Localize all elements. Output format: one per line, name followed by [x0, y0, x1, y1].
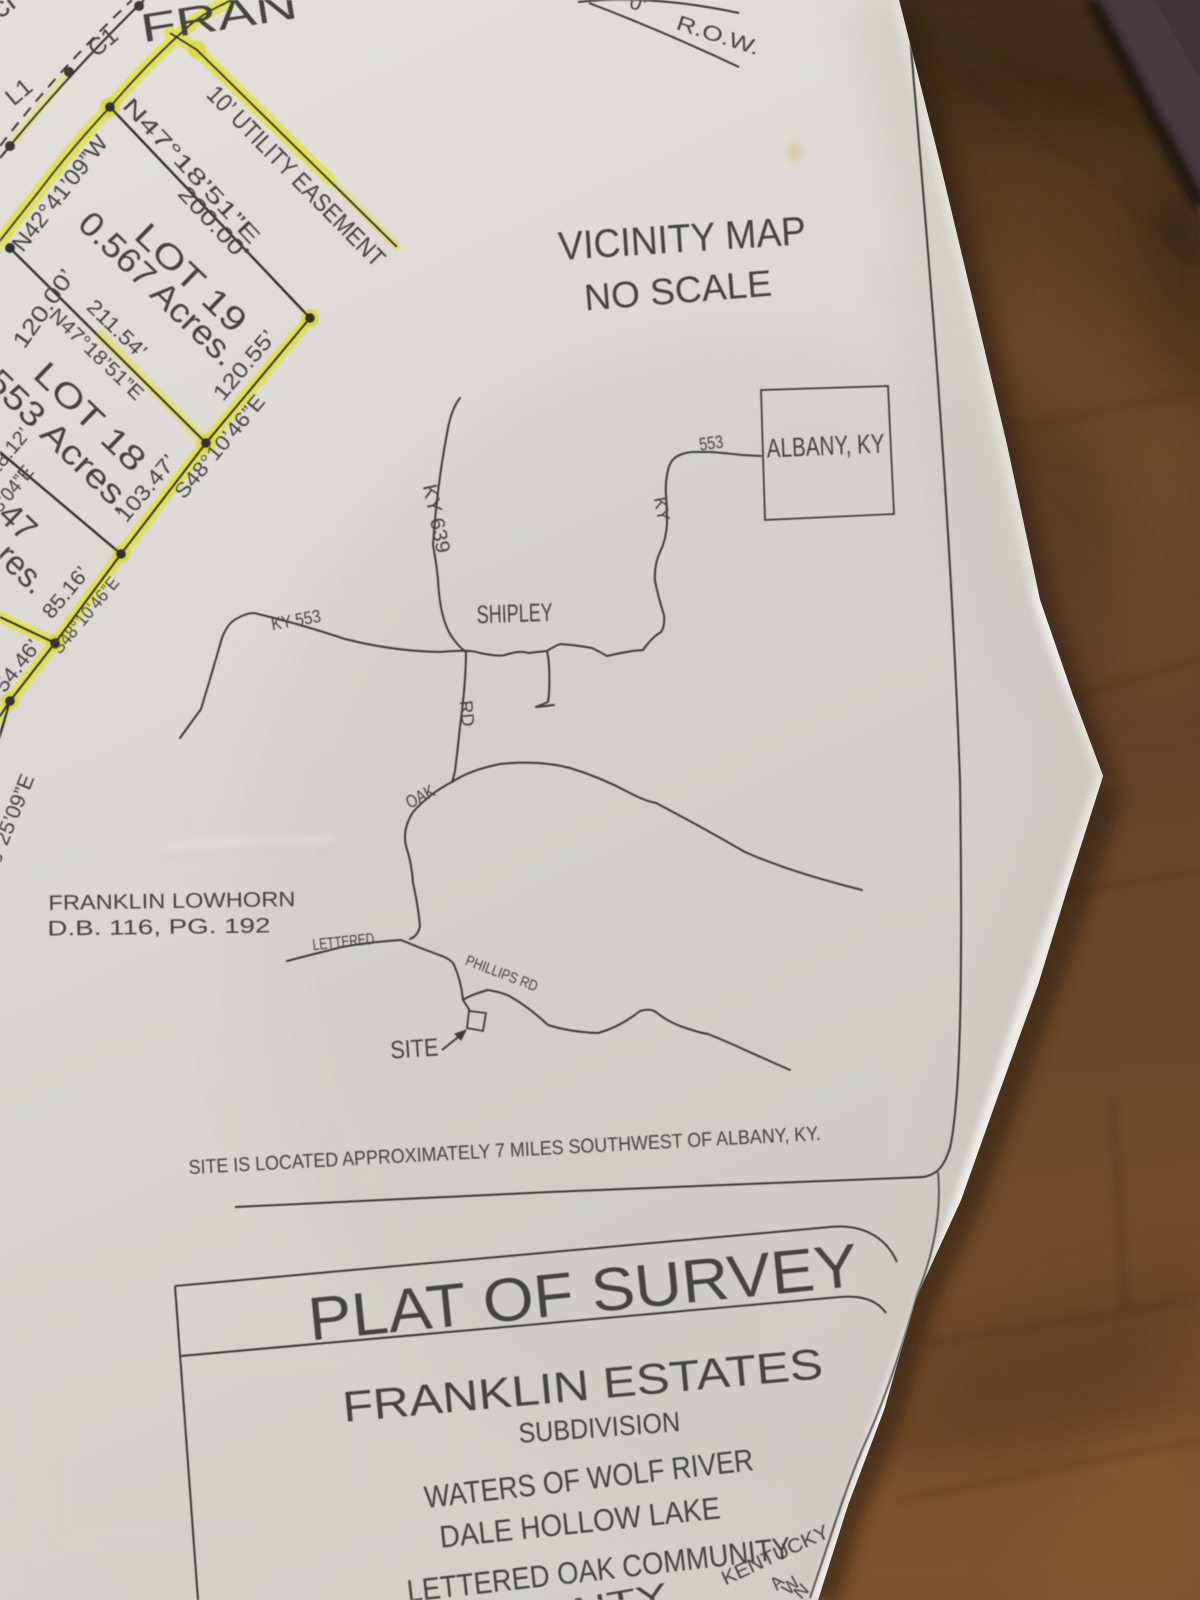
- svg-text:RD: RD: [456, 700, 478, 728]
- svg-text:SITE: SITE: [390, 1033, 440, 1064]
- svg-text:SHIPLEY: SHIPLEY: [476, 599, 553, 630]
- svg-text:FRANKLIN LOWHORN: FRANKLIN LOWHORN: [48, 888, 295, 915]
- svg-text:553: 553: [698, 431, 725, 454]
- svg-text:KY: KY: [650, 495, 674, 522]
- svg-text:D.B. 116, PG. 192: D.B. 116, PG. 192: [47, 914, 270, 940]
- svg-text:ALBANY, KY: ALBANY, KY: [766, 428, 885, 463]
